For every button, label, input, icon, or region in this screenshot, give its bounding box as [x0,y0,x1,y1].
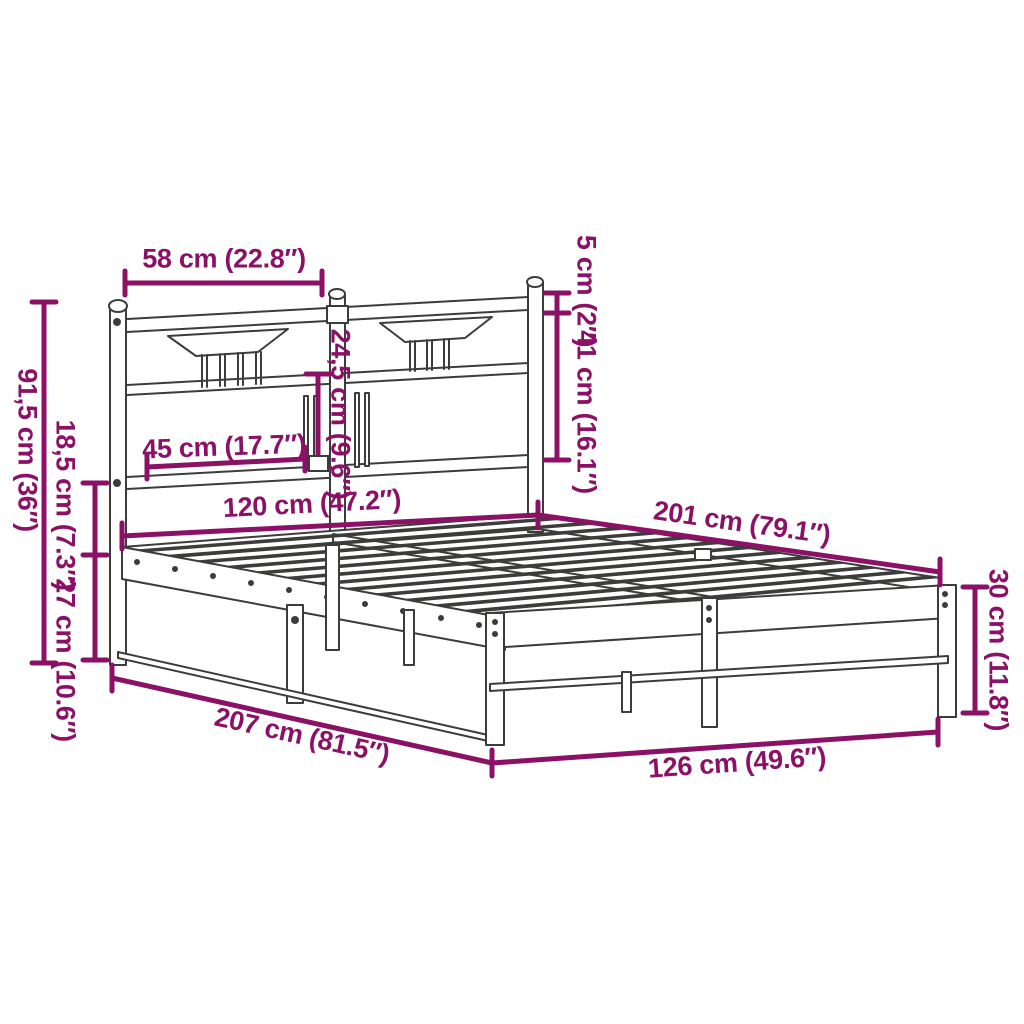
dimension-label-41cm: 41 cm (16.1″) [571,330,602,494]
dimension-label-91cm: 91,5 cm (36″) [12,368,43,532]
product-diagram: 58 cm (22.8″) 5 cm (2″) 41 cm (16.1″) 91… [0,0,1024,1024]
dimension-line-58cm [125,271,322,295]
dimension-label-27cm: 27 cm (10.6″) [50,578,81,742]
dimension-line-18cm-27cm [83,483,107,660]
dimension-label-45cm: 45 cm (17.7″) [142,429,307,466]
dimension-label-24cm: 24,5 cm (9.6″) [325,329,356,500]
dimension-label-30cm: 30 cm (11.8″) [983,569,1014,731]
bed-frame-line-drawing [0,0,1024,1024]
dimension-line-5cm-41cm [545,293,569,460]
dimension-label-18cm: 18,5 cm (7.3″) [50,420,81,591]
dimension-label-58cm: 58 cm (22.8″) [142,244,306,275]
footboard-drawing [486,585,956,745]
